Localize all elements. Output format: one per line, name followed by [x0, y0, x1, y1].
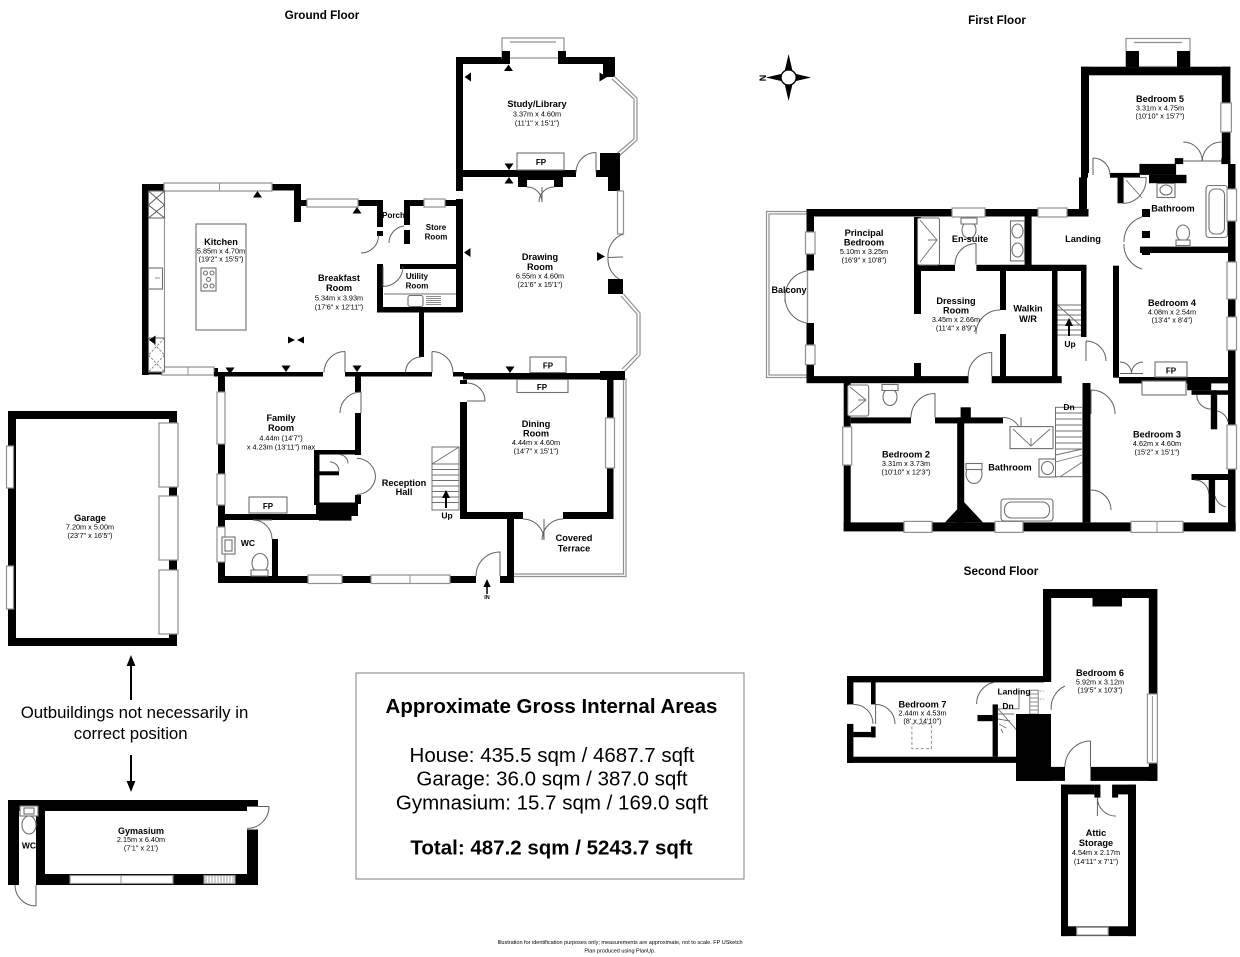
svg-text:(21'6" x 15'1"): (21'6" x 15'1") — [518, 280, 563, 289]
svg-text:WC: WC — [22, 841, 36, 851]
svg-text:Family: Family — [266, 413, 296, 423]
svg-text:Walkin: Walkin — [1013, 304, 1043, 314]
svg-text:Hall: Hall — [396, 487, 413, 497]
svg-text:Principal: Principal — [845, 228, 884, 238]
svg-text:Room: Room — [523, 429, 549, 439]
svg-text:Room: Room — [326, 283, 352, 293]
svg-text:Breakfast: Breakfast — [318, 273, 360, 283]
svg-text:Bedroom 5: Bedroom 5 — [1136, 94, 1184, 104]
svg-text:Porch: Porch — [382, 211, 405, 220]
svg-text:Balcony: Balcony — [771, 285, 806, 295]
svg-text:W/R: W/R — [1019, 314, 1037, 324]
svg-text:Up: Up — [441, 511, 452, 521]
svg-text:Landing: Landing — [1065, 234, 1101, 244]
svg-text:(19'5" x 10'3"): (19'5" x 10'3") — [1078, 686, 1123, 695]
svg-text:(23'7" x 16'5"): (23'7" x 16'5") — [68, 531, 113, 540]
svg-text:Total: 487.2 sqm / 5243.7 sqft: Total: 487.2 sqm / 5243.7 sqft — [410, 837, 692, 860]
svg-text:(8' x 14'10"): (8' x 14'10") — [903, 717, 941, 726]
svg-text:WC: WC — [241, 538, 255, 548]
svg-text:Garage: Garage — [74, 513, 106, 523]
svg-text:Second Floor: Second Floor — [964, 565, 1039, 578]
svg-text:Bedroom: Bedroom — [844, 238, 884, 248]
svg-text:Bedroom 3: Bedroom 3 — [1133, 430, 1181, 440]
svg-text:(17'6" x 12'11"): (17'6" x 12'11") — [315, 303, 363, 312]
svg-text:Room: Room — [406, 282, 429, 291]
svg-text:(14'7" x 15'1"): (14'7" x 15'1") — [514, 447, 559, 456]
svg-text:Covered: Covered — [556, 533, 593, 543]
svg-text:(16'9" x 10'8"): (16'9" x 10'8") — [842, 256, 887, 265]
svg-text:(19'2" x 15'5"): (19'2" x 15'5") — [199, 255, 244, 264]
svg-text:Room: Room — [425, 233, 448, 242]
svg-text:N: N — [758, 75, 768, 82]
svg-text:Kitchen: Kitchen — [204, 237, 238, 247]
svg-text:(15'2" x 15'1"): (15'2" x 15'1") — [1135, 448, 1180, 457]
svg-text:Dressing: Dressing — [936, 296, 975, 306]
svg-text:House: 435.5 sqm / 4687.7 sqft: House: 435.5 sqm / 4687.7 sqft — [410, 744, 695, 767]
svg-text:Bedroom 4: Bedroom 4 — [1148, 298, 1197, 308]
svg-text:(11'1" x 15'1"): (11'1" x 15'1") — [515, 119, 559, 128]
svg-text:IN: IN — [484, 595, 490, 601]
svg-text:Terrace: Terrace — [558, 544, 591, 554]
svg-text:(7'1" x 21'): (7'1" x 21') — [124, 844, 158, 853]
svg-text:Ground Floor: Ground Floor — [285, 9, 360, 22]
svg-text:(10'10" x 15'7"): (10'10" x 15'7") — [1136, 112, 1185, 121]
svg-text:4.44m (14'7"): 4.44m (14'7") — [259, 434, 302, 443]
svg-text:Illustration for identificatio: Illustration for identification purposes… — [497, 940, 742, 946]
svg-text:Garage: 36.0 sqm / 387.0 sqft: Garage: 36.0 sqm / 387.0 sqft — [416, 768, 688, 791]
svg-text:correct position: correct position — [74, 724, 188, 743]
svg-text:Bathroom: Bathroom — [988, 463, 1031, 473]
svg-text:(10'10" x 12'3"): (10'10" x 12'3") — [882, 468, 931, 477]
svg-text:FP: FP — [536, 158, 547, 167]
svg-text:Room: Room — [268, 423, 294, 433]
svg-text:Bedroom 6: Bedroom 6 — [1076, 668, 1124, 678]
svg-text:Bathroom: Bathroom — [1151, 204, 1194, 214]
svg-text:Storage: Storage — [1079, 838, 1113, 848]
svg-text:Up: Up — [1064, 339, 1075, 349]
svg-text:Attic: Attic — [1086, 828, 1106, 838]
svg-text:FP: FP — [543, 362, 554, 371]
svg-text:(13'4" x 8'4"): (13'4" x 8'4") — [1152, 316, 1193, 325]
svg-text:Gymnasium: 15.7 sqm / 169.0 sq: Gymnasium: 15.7 sqm / 169.0 sqft — [396, 792, 708, 815]
svg-text:Dn: Dn — [1063, 402, 1074, 412]
svg-text:(11'4" x 8'9"): (11'4" x 8'9") — [936, 324, 976, 333]
svg-text:First Floor: First Floor — [968, 14, 1026, 27]
svg-text:Bedroom 2: Bedroom 2 — [882, 450, 930, 460]
svg-text:FP: FP — [1166, 367, 1177, 376]
svg-text:Outbuildings not necessarily i: Outbuildings not necessarily in — [21, 703, 249, 722]
svg-text:x 4.23m (13'11") max: x 4.23m (13'11") max — [247, 443, 316, 452]
svg-text:FP: FP — [537, 383, 548, 392]
svg-text:Plan produced using PlanUp.: Plan produced using PlanUp. — [584, 949, 656, 955]
svg-text:5.34m x 3.93m: 5.34m x 3.93m — [315, 294, 363, 303]
svg-text:FP: FP — [263, 502, 274, 511]
svg-text:3.37m x 4.60m: 3.37m x 4.60m — [513, 110, 561, 119]
svg-text:Utility: Utility — [406, 272, 429, 281]
svg-text:Study/Library: Study/Library — [507, 99, 567, 109]
svg-text:Store: Store — [426, 223, 447, 232]
svg-text:Approximate Gross Internal Are: Approximate Gross Internal Areas — [386, 695, 718, 718]
svg-text:(14'11" x 7'1"): (14'11" x 7'1") — [1074, 857, 1118, 866]
svg-text:Drawing: Drawing — [522, 252, 558, 262]
svg-text:4.54m x 2.17m: 4.54m x 2.17m — [1072, 848, 1120, 857]
svg-text:Landing: Landing — [997, 687, 1030, 697]
svg-text:Room: Room — [943, 306, 969, 316]
svg-text:Room: Room — [527, 262, 553, 272]
svg-text:Dining: Dining — [522, 419, 551, 429]
svg-text:En-suite: En-suite — [952, 234, 988, 244]
svg-text:Dn: Dn — [1002, 701, 1013, 711]
